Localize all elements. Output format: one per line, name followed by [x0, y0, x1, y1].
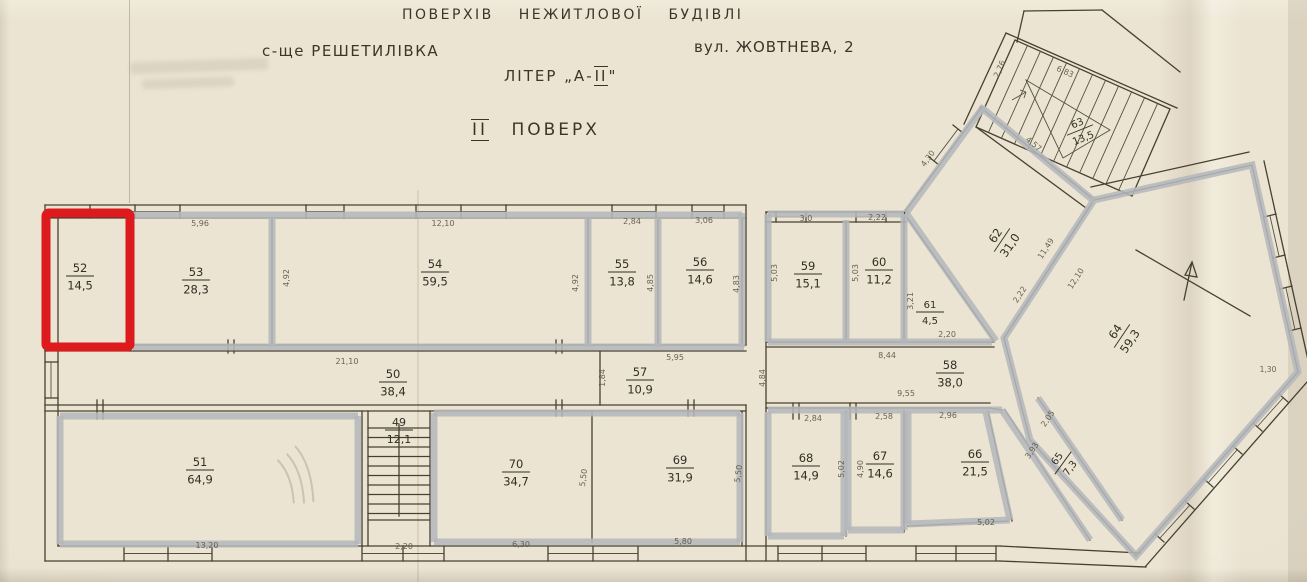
room-area: 31,9	[667, 471, 693, 485]
dimension-d66_top: 2,96	[939, 411, 957, 420]
room-number: 58	[943, 358, 958, 372]
room-label-67: 6714,6	[866, 449, 894, 481]
room-area: 38,4	[380, 385, 406, 399]
room-label-62: 6231,0	[982, 220, 1024, 261]
dimension-d54_r: 4,92	[571, 274, 580, 292]
room-area: 14,9	[793, 469, 819, 483]
room-label-70: 7034,7	[502, 457, 530, 489]
dimension-d50: 21,10	[336, 357, 359, 366]
room-label-51: 5164,9	[186, 455, 214, 487]
room-number: 69	[673, 453, 688, 467]
dimension-d67_l: 4,90	[856, 460, 865, 478]
dimension-d68_r: 5,02	[837, 460, 846, 478]
pencil-note	[270, 445, 323, 510]
room-area: 38,0	[937, 376, 963, 390]
scanned-floor-plan: ПОВЕРХІВ НЕЖИТЛОВОЇ БУДІВЛІ с-ще РЕШЕТИЛ…	[0, 0, 1307, 582]
dimension-d70_r: 5,50	[578, 468, 589, 487]
room-label-58: 5838,0	[936, 358, 964, 390]
room-area: 21,5	[962, 465, 988, 479]
room-number: 56	[693, 255, 708, 269]
room-number: 51	[193, 455, 208, 469]
staircase-63	[964, 33, 1177, 196]
dimension-d64_e: 1,30	[1260, 365, 1277, 374]
dimension-d68_top: 2,84	[804, 414, 822, 423]
dimension-labels-layer: 5,9612,102,843,063,02,224,924,924,854,83…	[191, 59, 1276, 551]
dimension-d53_r: 4,92	[282, 269, 291, 287]
dimension-d57_l: 1,84	[598, 369, 607, 387]
room-label-56: 5614,6	[686, 255, 714, 287]
room-number: 55	[615, 257, 630, 271]
room-number: 52	[73, 261, 88, 275]
dimension-d66_b: 5,02	[977, 518, 995, 527]
room-area: 13,8	[609, 275, 635, 289]
room-label-57: 5710,9	[626, 365, 654, 397]
room-area: 14,6	[687, 273, 713, 287]
room-label-66: 6621,5	[961, 447, 989, 479]
room-label-53: 5328,3	[182, 265, 210, 297]
room-label-55: 5513,8	[608, 257, 636, 289]
dimension-d63_m: 6,83	[1055, 64, 1075, 79]
dimension-d69_b: 5,80	[674, 537, 692, 546]
room-number: 70	[509, 457, 524, 471]
room-label-52: 5214,5	[66, 261, 94, 293]
room-number: 59	[801, 259, 816, 273]
room-number: 50	[386, 367, 401, 381]
room-number: 61	[924, 300, 937, 311]
dimension-d67_top: 2,58	[875, 412, 893, 421]
dimension-d56_top: 3,06	[695, 216, 713, 225]
dimension-d62_tl: 4,30	[919, 149, 937, 169]
room-number: 49	[392, 416, 406, 429]
room-number: 68	[799, 451, 814, 465]
room-label-60: 6011,2	[865, 255, 893, 287]
dimension-d60_top: 2,22	[868, 213, 886, 222]
room-area: 28,3	[183, 283, 209, 297]
dimension-d61_b: 2,20	[938, 330, 956, 339]
room-label-59: 5915,1	[794, 259, 822, 291]
room-number: 57	[633, 365, 648, 379]
dimension-d60_l: 5,03	[851, 264, 860, 282]
dimension-d55_r: 4,85	[646, 274, 655, 292]
room-area: 4,5	[922, 316, 938, 327]
room-label-63: 6313,5	[1063, 114, 1099, 150]
dimension-d64_l: 12,10	[1066, 267, 1086, 291]
dimension-d54_top: 12,10	[432, 219, 455, 228]
room-area: 14,5	[67, 279, 93, 293]
dimension-d57_top: 5,95	[666, 353, 684, 362]
room-area: 10,9	[627, 383, 653, 397]
dimension-d61_s: 3,21	[906, 292, 915, 310]
room-number: 54	[428, 257, 443, 271]
room-area: 14,6	[867, 467, 893, 481]
room-area: 59,5	[422, 275, 448, 289]
room-area: 34,7	[503, 475, 529, 489]
room-label-69: 6931,9	[666, 453, 694, 485]
room-label-61: 614,5	[916, 300, 944, 327]
room-label-64: 6459,3	[1102, 316, 1144, 357]
dimension-d51_b: 13,20	[196, 541, 219, 550]
dimension-d53_top: 5,96	[191, 219, 209, 228]
dimension-d58_l: 4,84	[758, 369, 767, 387]
dimension-d58_b: 9,55	[897, 389, 915, 398]
room-area: 15,1	[795, 277, 821, 291]
room-number: 60	[872, 255, 887, 269]
room-number: 53	[189, 265, 204, 279]
dimension-d59_l: 5,03	[770, 264, 779, 282]
room-area: 11,2	[866, 273, 892, 287]
dimension-d70_b: 6,30	[512, 540, 530, 549]
dimension-d58_a: 8,44	[878, 351, 896, 360]
room-label-50: 5038,4	[379, 367, 407, 399]
room-number: 66	[968, 447, 983, 461]
dimension-d56_r: 4,83	[732, 275, 741, 293]
room-area: 12,1	[387, 433, 412, 446]
dimension-d63_l: 2,76	[992, 59, 1007, 79]
dimension-d55_top: 2,84	[623, 217, 641, 226]
dimension-d59_top: 3,0	[800, 214, 813, 223]
room-label-54: 5459,5	[421, 257, 449, 289]
room-area: 64,9	[187, 473, 213, 487]
room-number: 67	[873, 449, 888, 463]
room-labels-layer: 4912,15038,45164,95214,55328,35459,55513…	[66, 114, 1144, 489]
floor-plan-drawing: 4912,15038,45164,95214,55328,35459,55513…	[0, 0, 1307, 582]
room-label-68: 6814,9	[792, 451, 820, 483]
dimension-d49_b: 2,20	[395, 542, 413, 551]
